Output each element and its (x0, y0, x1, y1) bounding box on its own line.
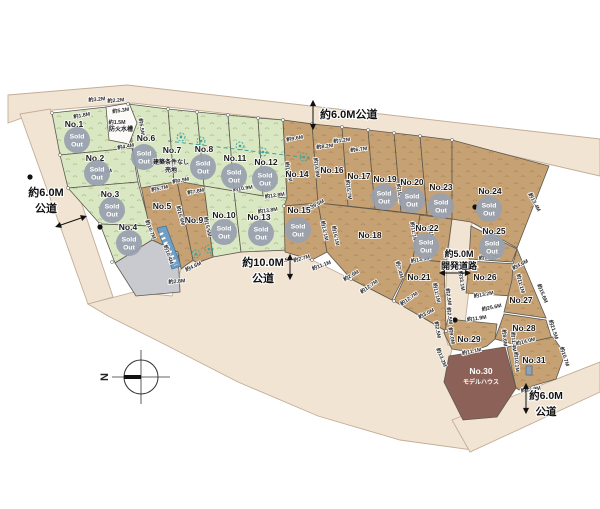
plot-no-29-label: No.29 (457, 334, 480, 344)
road-label-development: 開発道路 (441, 260, 478, 271)
soldout-line2: Out (483, 211, 495, 218)
plot-no-17-label: No.17 (347, 171, 370, 181)
plot-no-8-label: No.8 (195, 144, 214, 154)
soldout-line1: Sold (137, 151, 152, 158)
soldout-line1: Sold (419, 240, 434, 247)
plot-no-6-label: No.6 (137, 133, 156, 143)
soldout-line2: Out (218, 234, 230, 241)
plot-no-10-soldout-badge: SoldOut (211, 219, 237, 245)
boundary-vertex (393, 300, 396, 303)
road-label-south: 約10.0M (242, 255, 284, 269)
soldout-line1: Sold (482, 203, 497, 210)
survey-point (97, 224, 102, 229)
boundary-vertex (111, 261, 114, 264)
plot-no-8-soldout-badge: SoldOut (190, 154, 216, 180)
boundary-vertex (67, 187, 70, 190)
road-label-west: 公道 (35, 201, 57, 215)
soldout-line1: Sold (196, 161, 211, 168)
plot-no-30-label: No.30 (469, 366, 492, 376)
plot-no-11-soldout-badge: SoldOut (221, 163, 247, 189)
compass: N (99, 350, 170, 404)
plot-no-31-label: No.31 (522, 355, 545, 365)
soldout-line1: Sold (405, 194, 420, 201)
survey-point (27, 174, 32, 179)
plot-no-13-soldout-badge: SoldOut (248, 220, 274, 246)
soldout-line2: Out (406, 202, 418, 209)
soldout-line1: Sold (254, 227, 269, 234)
plot-no-15-soldout-badge: SoldOut (285, 217, 311, 243)
soldout-line2: Out (486, 249, 498, 256)
boundary-vertex (367, 129, 370, 132)
road-label-north: 約6.0M公道 (320, 107, 377, 121)
soldout-line1: Sold (70, 134, 85, 141)
boundary-vertex (167, 108, 170, 111)
plot-no-28-label: No.28 (512, 323, 535, 333)
soldout-line1: Sold (227, 170, 242, 177)
soldout-line2: Out (138, 159, 150, 166)
plot-no-10-label: No.10 (212, 210, 235, 220)
soldout-line1: Sold (90, 167, 105, 174)
boundary-vertex (282, 119, 285, 122)
boundary-vertex (257, 117, 260, 120)
plot-no-19-label: No.19 (373, 174, 396, 184)
plot-no-20-label: No.20 (400, 177, 423, 187)
soldout-line2: Out (228, 178, 240, 185)
soldout-line1: Sold (217, 226, 232, 233)
plot-no-26-label: No.26 (473, 272, 496, 282)
boundary-vertex (59, 154, 62, 157)
road-label-development: 約5.0M (444, 248, 473, 259)
soldout-line1: Sold (122, 237, 137, 244)
road-label-southeast: 公道 (536, 405, 557, 418)
plot-no-23-label: No.23 (429, 182, 452, 192)
plot-no-15-label: No.15 (287, 205, 310, 215)
boundary-vertex (451, 139, 454, 142)
boundary-vertex (311, 259, 314, 262)
plot-no-20-soldout-badge: SoldOut (399, 187, 425, 213)
boundary-vertex (419, 135, 422, 138)
dimension-label: 約11.9M (466, 313, 487, 324)
dimension-label: 約1.5M (108, 118, 126, 126)
plot-no-30-sublabel: モデルハウス (463, 378, 499, 386)
plot-no-19-soldout-badge: SoldOut (371, 184, 397, 210)
plot-no-25-soldout-badge: SoldOut (479, 234, 505, 260)
soldout-line2: Out (71, 142, 83, 149)
plot-no-5-label: No.5 (153, 201, 172, 211)
plot-no-12-soldout-badge: SoldOut (252, 166, 278, 192)
soldout-line2: Out (91, 175, 103, 182)
shed-icon (526, 366, 532, 375)
boundary-vertex (341, 126, 344, 129)
plot-no-4-soldout-badge: SoldOut (116, 230, 142, 256)
plot-no-3-soldout-badge: SoldOut (99, 197, 125, 223)
plot-no-27-label: No.27 (509, 295, 532, 305)
soldout-line2: Out (420, 248, 432, 255)
soldout-line2: Out (292, 232, 304, 239)
soldout-line1: Sold (377, 191, 392, 198)
soldout-line1: Sold (485, 241, 500, 248)
soldout-line1: Sold (434, 200, 449, 207)
boundary-vertex (283, 205, 286, 208)
boundary-vertex (227, 114, 230, 117)
road-label-south: 公道 (252, 271, 274, 285)
compass-north-label: N (99, 373, 111, 381)
soldout-line2: Out (197, 169, 209, 176)
plot-no-24-soldout-badge: SoldOut (476, 196, 502, 222)
plot-no-7-label: No.7 (163, 145, 182, 155)
plot-no-23-soldout-badge: SoldOut (428, 193, 454, 219)
site-plan: 約3.2M約2.2M約1.8M約5.3M約1.5M約4.4M約5.5M約4.9M… (0, 0, 600, 509)
plot-no-14-label: No.14 (285, 169, 308, 179)
soldout-line2: Out (106, 212, 118, 219)
plot-fire-cistern-sublabel: 防火水槽 (109, 125, 133, 133)
plot-no-7-sublabel: 建築条件なし (153, 158, 189, 166)
soldout-line2: Out (435, 208, 447, 215)
boundary-vertex (393, 132, 396, 135)
plot-no-11-label: No.11 (224, 153, 247, 163)
soldout-line1: Sold (105, 204, 120, 211)
road-label-west: 約6.0M (28, 185, 63, 199)
plot-no-6-soldout-badge: SoldOut (131, 144, 157, 170)
plot-no-18-label: No.18 (358, 230, 381, 240)
plot-no-21-label: No.21 (407, 272, 430, 282)
plot-no-1-soldout-badge: SoldOut (64, 127, 90, 153)
soldout-line2: Out (378, 199, 390, 206)
plot-no-2-soldout-badge: SoldOut (84, 160, 110, 186)
soldout-line2: Out (259, 181, 271, 188)
road-label-southeast: 約6.0M (529, 389, 563, 402)
boundary-vertex (196, 111, 199, 114)
plot-no-16-label: No.16 (320, 165, 343, 175)
land-plot-map: 約3.2M約2.2M約1.8M約5.3M約1.5M約4.4M約5.5M約4.9M… (0, 0, 600, 509)
boundary-vertex (51, 112, 54, 115)
soldout-line2: Out (255, 235, 267, 242)
soldout-line1: Sold (258, 173, 273, 180)
soldout-line2: Out (123, 245, 135, 252)
plot-no-24-label: No.24 (478, 186, 501, 196)
plot-no-7-sublabel: 売地 (164, 166, 177, 174)
plot-no-22-soldout-badge: SoldOut (413, 233, 439, 259)
soldout-line1: Sold (291, 224, 306, 231)
boundary-vertex (127, 103, 130, 106)
plot-no-12-label: No.12 (254, 157, 277, 167)
plot-no-9-label: No.9 (185, 215, 204, 225)
dimension-label: 約25.6M (481, 301, 503, 313)
plot-no-22-label: No.22 (415, 223, 438, 233)
